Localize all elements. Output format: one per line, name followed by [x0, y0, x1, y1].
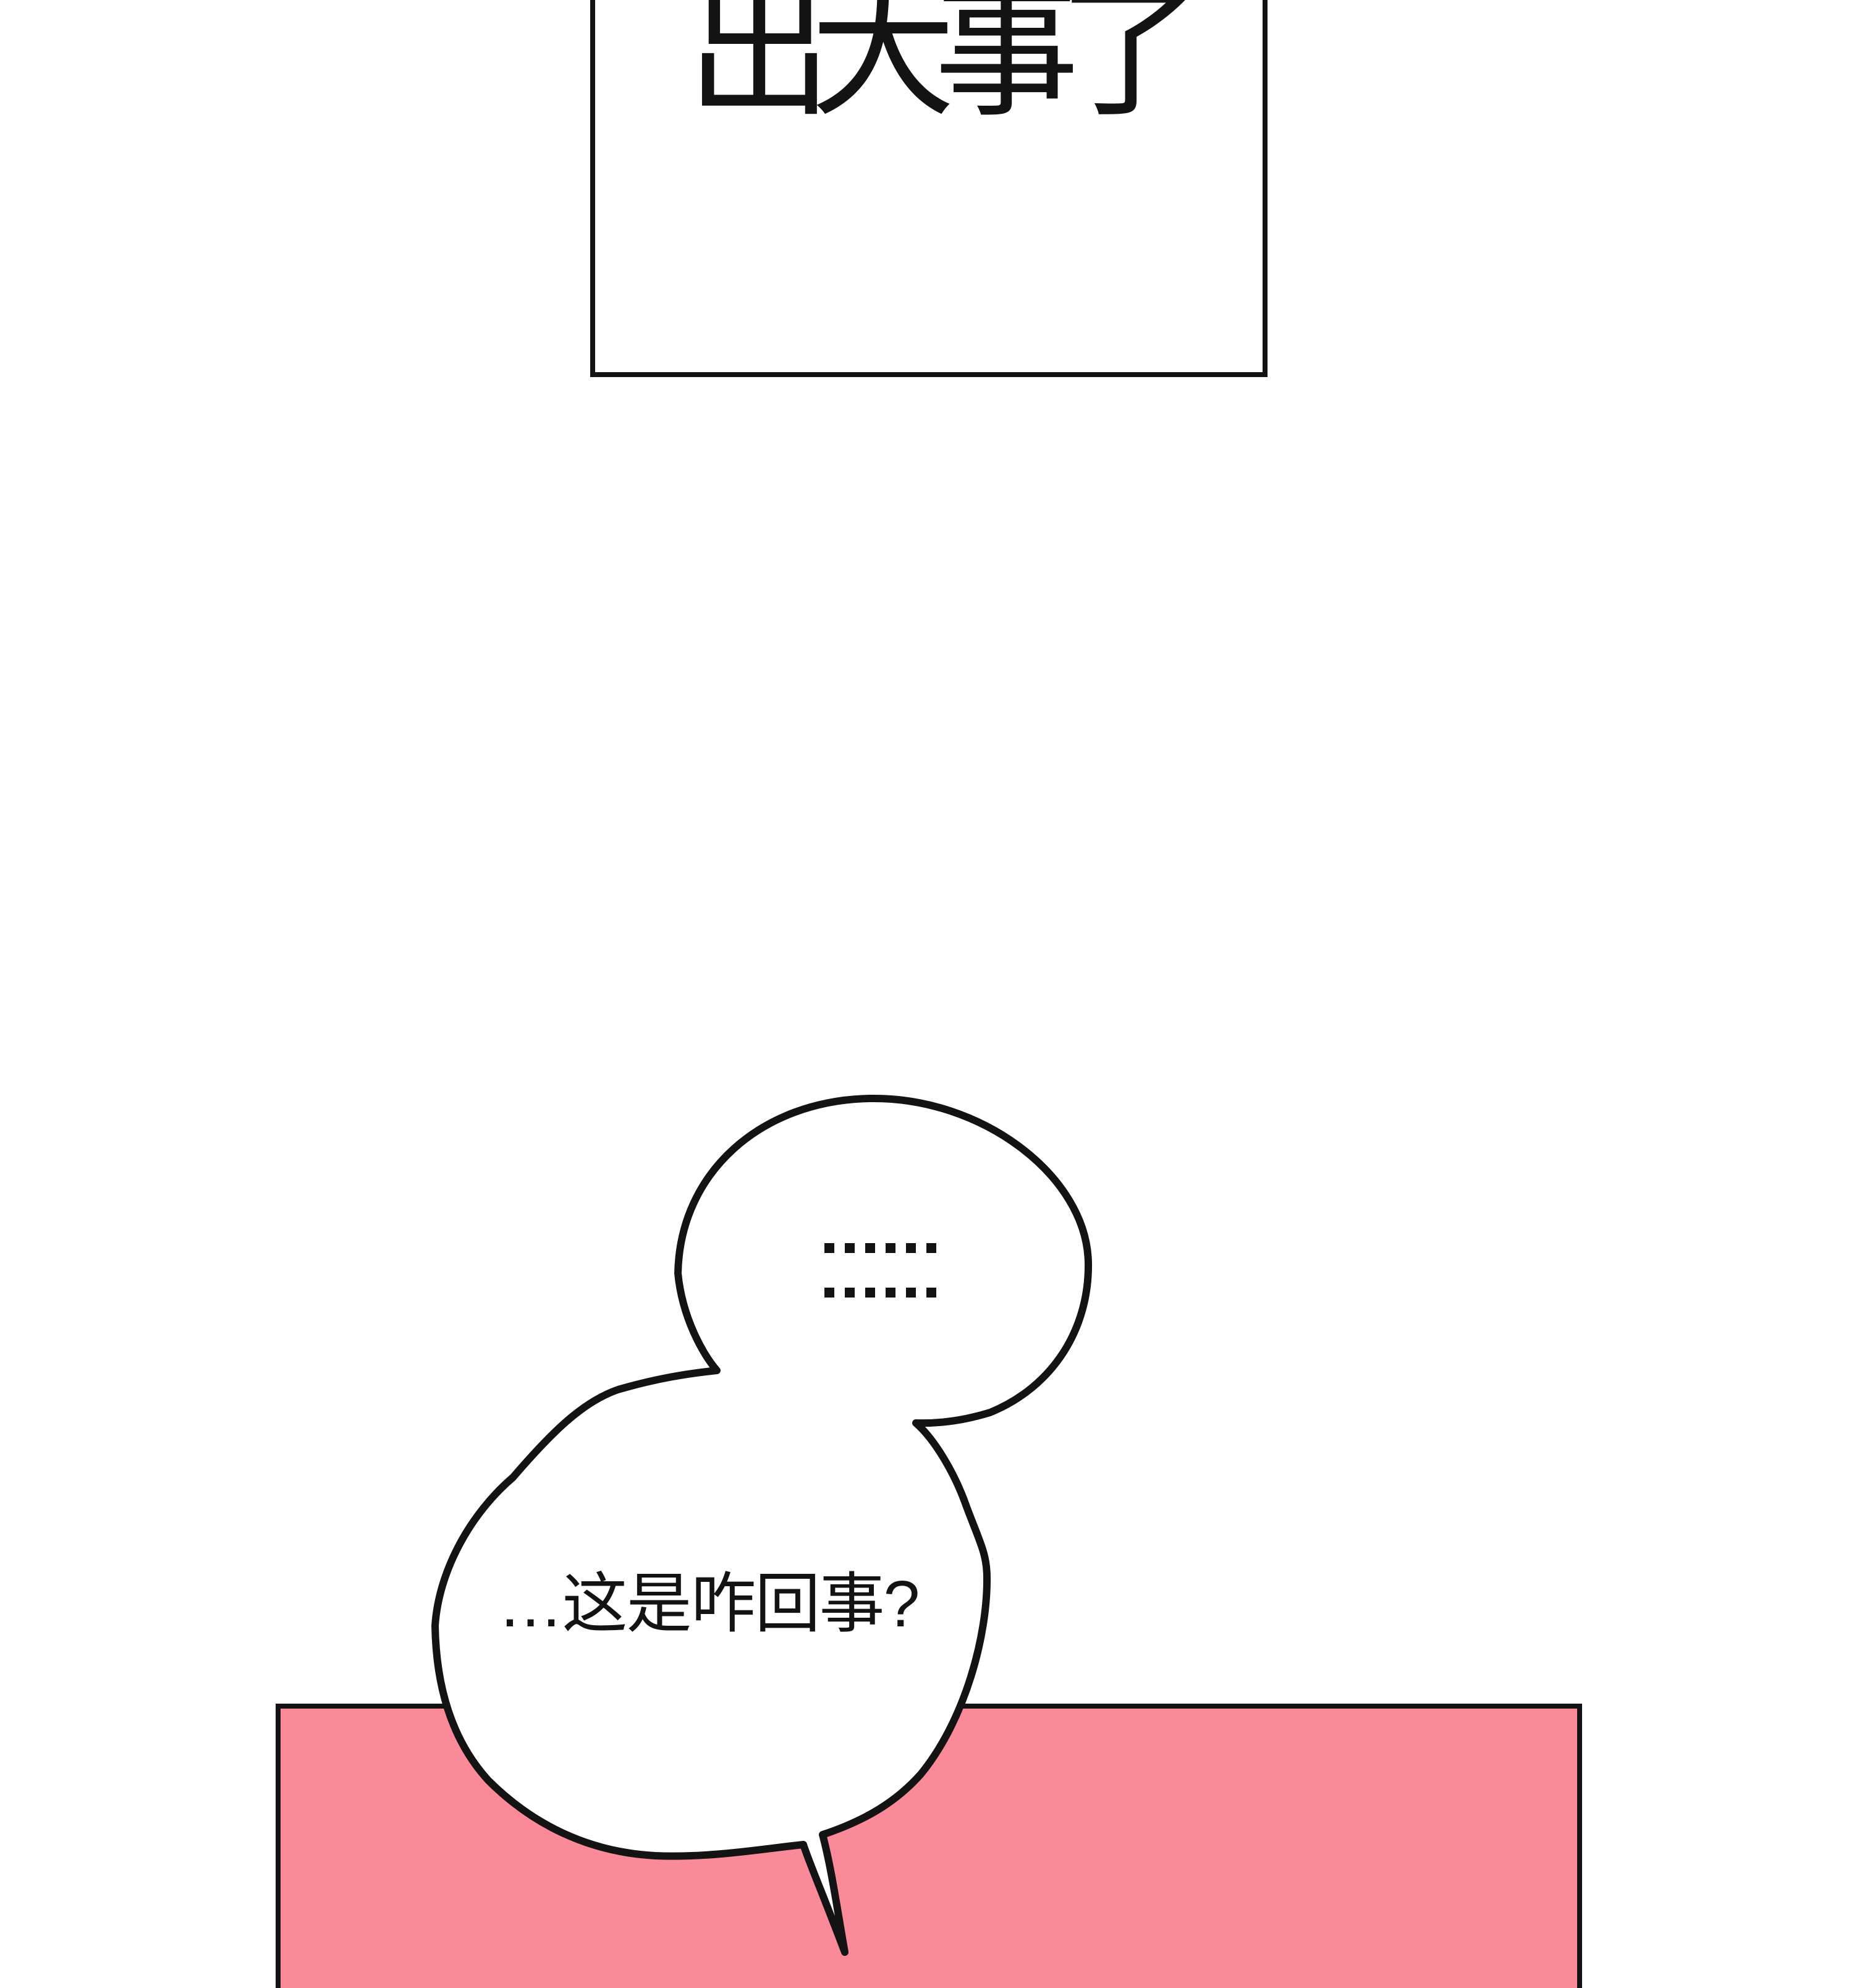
ellipsis-dot	[906, 1288, 916, 1298]
ellipsis-dot	[845, 1288, 855, 1298]
ellipsis-dot	[865, 1243, 875, 1253]
dialogue-text: …这是咋回事?	[399, 1570, 1017, 1639]
ellipsis-dot	[824, 1288, 834, 1298]
ellipsis-dot	[865, 1288, 875, 1298]
ellipsis-dot	[886, 1288, 895, 1298]
pink-panel	[276, 1704, 1582, 1988]
ellipsis-row	[824, 1243, 936, 1253]
ellipsis-dots	[824, 1243, 936, 1298]
ellipsis-dot	[886, 1243, 895, 1253]
caption-text: 出大事了	[590, 0, 1268, 127]
ellipsis-dot	[926, 1288, 936, 1298]
ellipsis-row	[824, 1288, 936, 1298]
ellipsis-dot	[926, 1243, 936, 1253]
comic-page: 出大事了 …这是咋回事?	[0, 0, 1854, 1978]
ellipsis-dot	[906, 1243, 916, 1253]
ellipsis-dot	[845, 1243, 855, 1253]
ellipsis-dot	[824, 1243, 834, 1253]
